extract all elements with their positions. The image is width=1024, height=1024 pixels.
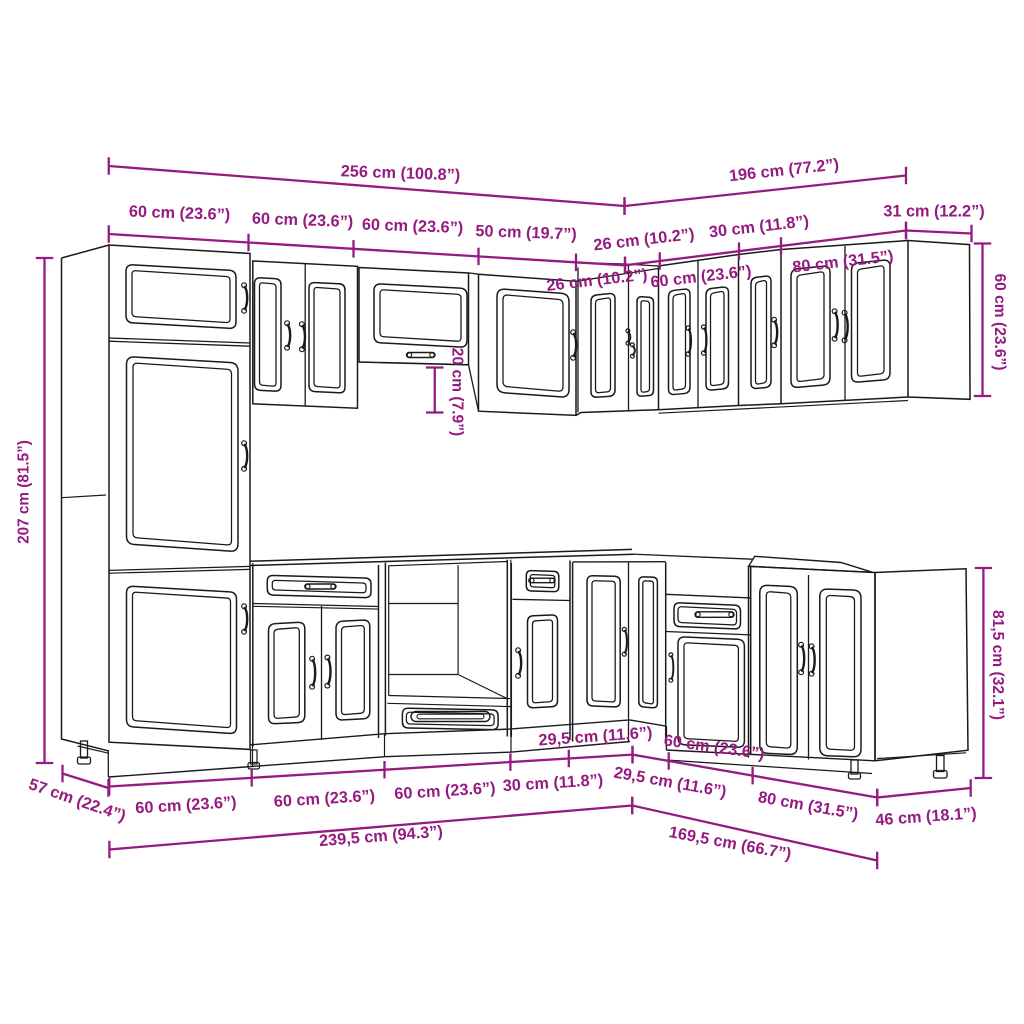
svg-text:30 cm (11.8”): 30 cm (11.8”) <box>708 212 810 241</box>
svg-text:60 cm (23.6”): 60 cm (23.6”) <box>252 210 354 232</box>
svg-text:26 cm (10.2”): 26 cm (10.2”) <box>593 225 696 254</box>
svg-text:169,5 cm (66.7”): 169,5 cm (66.7”) <box>668 823 793 863</box>
svg-text:31 cm (12.2”): 31 cm (12.2”) <box>883 202 984 220</box>
svg-text:81,5 cm (32.1”): 81,5 cm (32.1”) <box>989 610 1006 720</box>
svg-text:57 cm (22.4”): 57 cm (22.4”) <box>26 775 128 825</box>
svg-text:256 cm (100.8”): 256 cm (100.8”) <box>341 162 461 184</box>
svg-text:60 cm (23.6”): 60 cm (23.6”) <box>273 787 375 811</box>
svg-text:60 cm (23.6”): 60 cm (23.6”) <box>362 216 464 238</box>
svg-text:239,5 cm (94.3”): 239,5 cm (94.3”) <box>318 822 443 850</box>
svg-text:60 cm (23.6”): 60 cm (23.6”) <box>135 793 237 817</box>
svg-text:29,5 cm (11.6”): 29,5 cm (11.6”) <box>538 724 653 750</box>
svg-text:60 cm (23.6”): 60 cm (23.6”) <box>129 203 231 225</box>
svg-text:60 cm (23.6”): 60 cm (23.6”) <box>650 262 753 291</box>
svg-text:26 cm (10.2”): 26 cm (10.2”) <box>546 266 649 295</box>
svg-text:207 cm (81.5”): 207 cm (81.5”) <box>16 440 33 544</box>
svg-text:30 cm (11.8”): 30 cm (11.8”) <box>502 771 603 795</box>
svg-text:46 cm (18.1”): 46 cm (18.1”) <box>875 804 977 829</box>
svg-text:80 cm (31.5”): 80 cm (31.5”) <box>757 788 860 823</box>
svg-text:80 cm (31.5”): 80 cm (31.5”) <box>792 247 895 276</box>
svg-text:60 cm (23.6”): 60 cm (23.6”) <box>394 779 496 803</box>
svg-text:60 cm (23.6”): 60 cm (23.6”) <box>991 273 1008 370</box>
svg-text:20 cm (7.9”): 20 cm (7.9”) <box>448 348 465 436</box>
svg-text:50 cm (19.7”): 50 cm (19.7”) <box>475 222 577 244</box>
svg-text:196 cm (77.2”): 196 cm (77.2”) <box>728 155 840 185</box>
